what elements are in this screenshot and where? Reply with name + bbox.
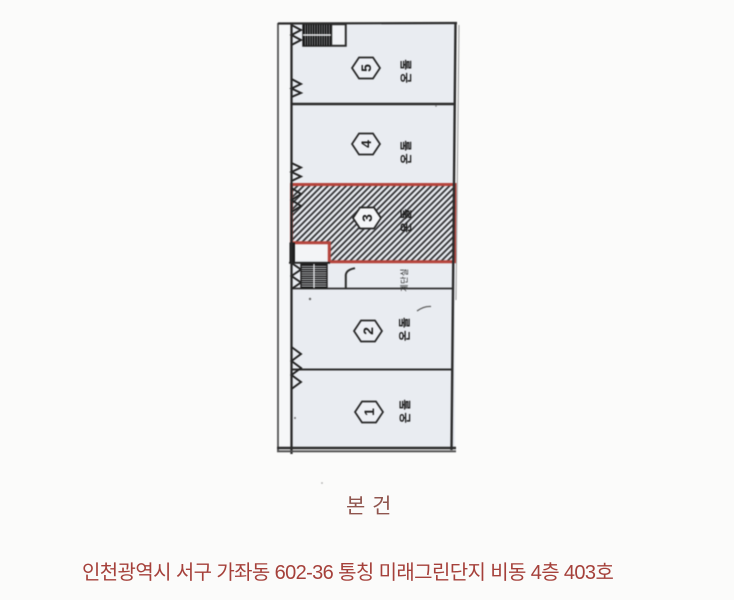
svg-text:1: 1 bbox=[361, 408, 377, 416]
svg-text:온돌: 온돌 bbox=[398, 315, 412, 341]
svg-text:계단실: 계단실 bbox=[399, 268, 409, 292]
svg-text:온돌: 온돌 bbox=[398, 397, 412, 423]
svg-text:5: 5 bbox=[358, 64, 374, 72]
svg-text:온돌: 온돌 bbox=[399, 138, 413, 164]
svg-text:온돌: 온돌 bbox=[399, 206, 413, 232]
svg-text:3: 3 bbox=[359, 214, 375, 222]
svg-text:2: 2 bbox=[360, 327, 376, 335]
svg-text:온돌: 온돌 bbox=[399, 57, 413, 83]
svg-text:4: 4 bbox=[358, 140, 374, 148]
